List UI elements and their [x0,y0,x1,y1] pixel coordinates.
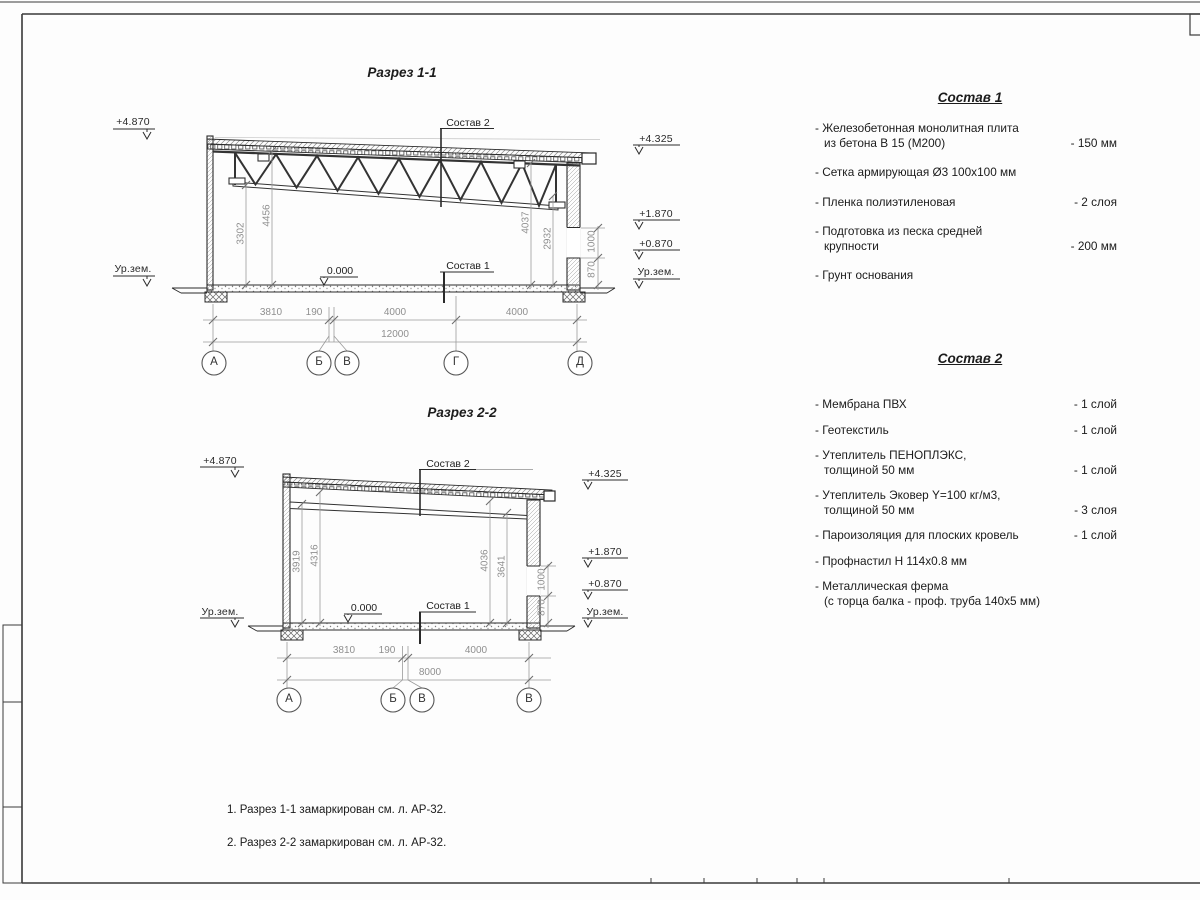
s2-vdim-4316: 4316 [310,531,321,581]
item-name: - Утеплитель Эковер Y=100 кг/м3, толщино… [815,488,1000,517]
s1-axis-a: А [202,356,226,368]
s2-elev-right-mid1: +1.870 [582,546,628,558]
list-item: - Грунт основания [815,268,1117,283]
list-item: - Пароизоляция для плоских кровель - 1 с… [815,528,1117,543]
s2-elev-left-top: +4.870 [197,455,243,467]
list-item: - Подготовка из песка средней крупности … [815,224,1117,253]
s1-ref-floor: Состав 1 [440,260,496,272]
s1-sidedim-870: 870 [587,245,598,295]
item-name: - Сетка армирующая Ø3 100x100 мм [815,165,1016,180]
s2-hdim-3810: 3810 [314,645,374,656]
s2-elev-right-mid2: +0.870 [582,578,628,590]
item-name: - Металлическая ферма (с торца балка - п… [815,579,1040,608]
s2-elev-left-ground: Ур.зем. [197,606,243,618]
list-item: - Утеплитель ПЕНОПЛЭКС, толщиной 50 мм -… [815,448,1117,477]
item-name: - Утеплитель ПЕНОПЛЭКС, толщиной 50 мм [815,448,966,477]
item-name: - Профнастил Н 114x0.8 мм [815,554,967,569]
s2-vdim-3919: 3919 [292,537,303,587]
item-name: - Грунт основания [815,268,913,283]
s2-ref-roof: Состав 2 [419,458,477,470]
s1-elev-right-mid2: +0.870 [633,238,679,250]
s1-zero-mark: 0.000 [318,265,362,277]
s2-ref-floor: Состав 1 [419,600,477,612]
item-name: - Геотекстиль [815,423,891,438]
sostav1-title: Состав 1 [900,90,1040,105]
section1-title: Разрез 1-1 [322,65,482,80]
list-item: - Профнастил Н 114x0.8 мм [815,554,1117,569]
s1-elev-right-mid1: +1.870 [633,208,679,220]
s1-axis-g: Г [444,356,468,368]
s2-sidedim-870: 870 [537,583,548,633]
item-value: - 1 слой [1074,528,1117,543]
item-name: - Подготовка из песка средней крупности [815,224,982,253]
sheet-notes: 1. Разрез 1-1 замаркирован см. л. АР-32.… [227,785,446,868]
list-item: - Мембрана ПВХ - 1 слой [815,397,1117,412]
s1-hdim-190: 190 [294,307,334,318]
s1-vdim-2932: 2932 [543,214,554,264]
s1-hdim-3810: 3810 [241,307,301,318]
s1-total-dim: 12000 [363,329,427,340]
list-item: - Пленка полиэтиленовая - 2 слоя [815,195,1117,210]
s1-elev-left-ground: Ур.зем. [110,263,156,275]
note-line-1: 1. Разрез 1-1 замаркирован см. л. АР-32. [227,802,446,819]
list-item: - Металлическая ферма (с торца балка - п… [815,579,1117,608]
s1-axis-d: Д [568,356,592,368]
item-value: - 200 мм [1071,239,1117,254]
s2-total-dim: 8000 [398,667,462,678]
s1-vdim-4456: 4456 [262,191,273,241]
s1-elev-right-ground: Ур.зем. [633,266,679,278]
section2-title: Разрез 2-2 [382,405,542,420]
s2-axis-a: А [277,693,301,705]
list-item: - Геотекстиль - 1 слой [815,423,1117,438]
s2-vdim-3641: 3641 [497,542,508,592]
s2-hdim-190: 190 [367,645,407,656]
item-value: - 2 слоя [1074,195,1117,210]
s2-elev-right-ground: Ур.зем. [582,606,628,618]
sostav2-list: - Мембрана ПВХ - 1 слой - Геотекстиль - … [815,397,1117,608]
item-value: - 150 мм [1071,136,1117,151]
s2-hdim-4000: 4000 [446,645,506,656]
s2-axis-v2: В [517,693,541,705]
s1-ref-roof: Состав 2 [440,117,496,129]
item-name: - Железобетонная монолитная плита из бет… [815,121,1019,150]
s1-hdim-4000b: 4000 [487,307,547,318]
s1-elev-right-top: +4.325 [633,133,679,145]
item-value: - 1 слой [1074,423,1117,438]
item-value: - 3 слоя [1074,503,1117,518]
sostav1-list: - Железобетонная монолитная плита из бет… [815,121,1117,283]
item-name: - Мембрана ПВХ [815,397,907,412]
sostav2-title: Состав 2 [900,351,1040,366]
item-value: - 1 слой [1074,397,1117,412]
item-value: - 1 слой [1074,463,1117,478]
list-item: - Железобетонная монолитная плита из бет… [815,121,1117,150]
note-line-2: 2. Разрез 2-2 замаркирован см. л. АР-32. [227,835,446,852]
list-item: - Утеплитель Эковер Y=100 кг/м3, толщино… [815,488,1117,517]
s2-axis-v1: В [410,693,434,705]
s2-axis-b: Б [381,693,405,705]
item-name: - Пленка полиэтиленовая [815,195,955,210]
list-item: - Сетка армирующая Ø3 100x100 мм [815,165,1117,180]
s1-axis-b: Б [307,356,331,368]
s1-hdim-4000a: 4000 [365,307,425,318]
s1-axis-v: В [335,356,359,368]
item-name: - Пароизоляция для плоских кровель [815,528,1019,543]
s1-elev-left-top: +4.870 [110,116,156,128]
drawing-sheet: Разрез 1-1 +4.870 Ур.зем. +4.325 +1.870 … [0,0,1200,900]
s2-elev-right-top: +4.325 [582,468,628,480]
s2-zero-mark: 0.000 [342,602,386,614]
